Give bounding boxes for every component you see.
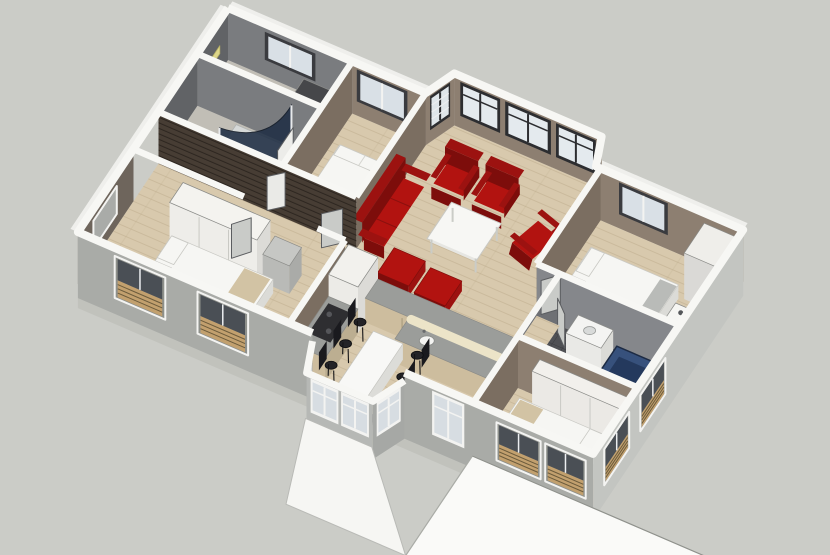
burner <box>326 312 332 318</box>
door-panel <box>267 173 285 211</box>
burner <box>326 328 332 334</box>
faucet <box>422 330 425 333</box>
chair-seat <box>325 361 337 369</box>
basin <box>584 327 596 335</box>
door-panel <box>232 218 252 258</box>
scene-root <box>0 0 830 555</box>
chair-seat <box>354 318 366 326</box>
chair-seat <box>340 340 352 348</box>
floorplan-3d-view <box>0 0 830 555</box>
floorplan-render <box>0 0 830 555</box>
chair-seat <box>411 351 423 359</box>
